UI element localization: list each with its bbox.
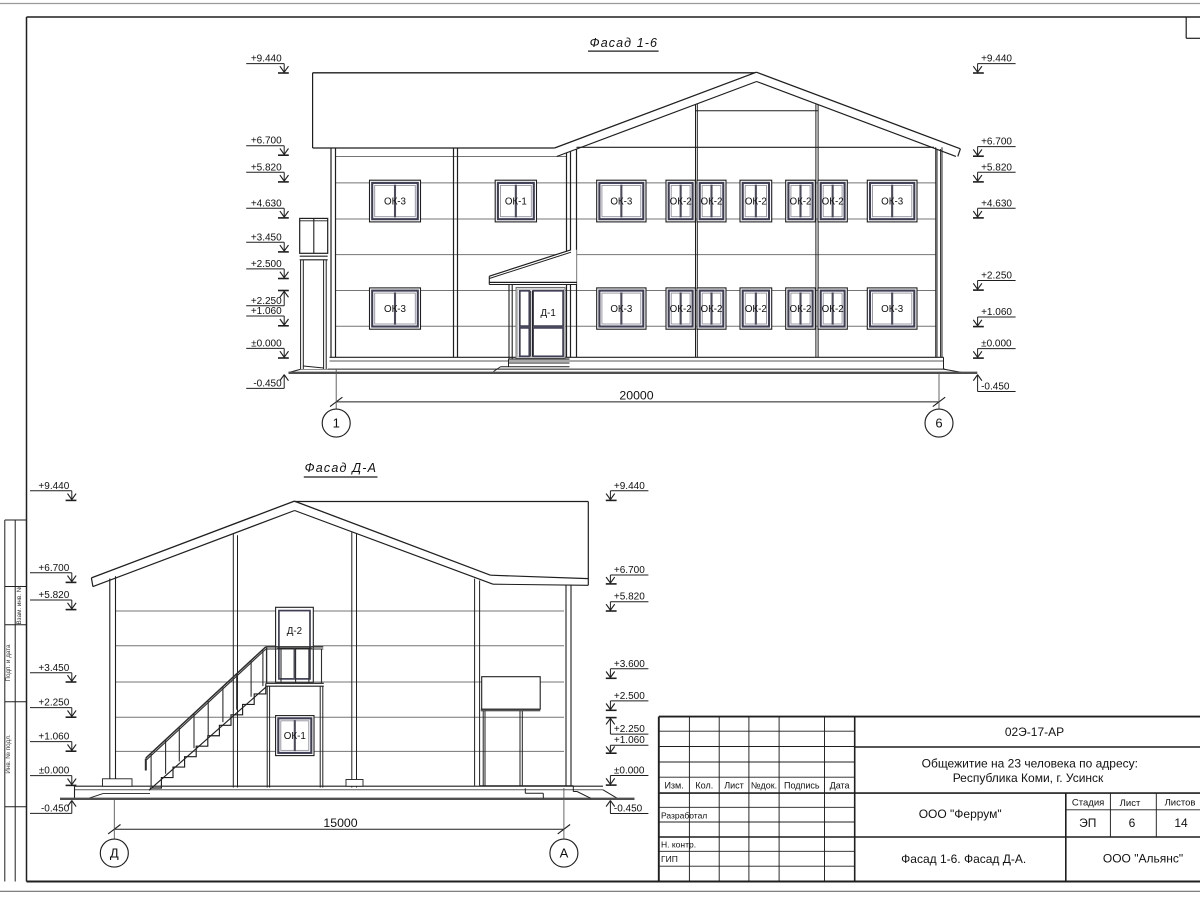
- svg-text:1: 1: [333, 416, 340, 431]
- svg-text:-0.450: -0.450: [981, 382, 1010, 393]
- svg-text:Изм.: Изм.: [664, 781, 683, 791]
- svg-text:+2.500: +2.500: [251, 259, 282, 270]
- svg-text:-0.450: -0.450: [614, 804, 643, 815]
- svg-text:-0.450: -0.450: [41, 803, 70, 814]
- svg-text:ОК-2: ОК-2: [700, 196, 722, 207]
- svg-text:Фасад 1-6: Фасад 1-6: [590, 36, 658, 50]
- svg-text:ООО "Феррум": ООО "Феррум": [919, 807, 1002, 821]
- svg-text:ОК-2: ОК-2: [822, 196, 844, 207]
- svg-text:ГИП: ГИП: [661, 854, 678, 864]
- svg-text:+2.250: +2.250: [614, 724, 645, 735]
- svg-text:Фасад Д-А: Фасад Д-А: [305, 461, 378, 475]
- svg-text:Д-1: Д-1: [541, 308, 556, 319]
- svg-text:+5.820: +5.820: [251, 162, 282, 173]
- svg-text:+2.250: +2.250: [38, 698, 69, 709]
- svg-text:+6.700: +6.700: [38, 563, 69, 574]
- svg-text:ОК-3: ОК-3: [610, 196, 633, 207]
- svg-text:Лист: Лист: [1120, 798, 1141, 809]
- svg-text:Фасад 1-6. Фасад Д-А.: Фасад 1-6. Фасад Д-А.: [901, 852, 1026, 866]
- svg-text:ОК-2: ОК-2: [789, 304, 811, 315]
- svg-text:+9.440: +9.440: [614, 481, 645, 492]
- svg-text:Инв. № подл.: Инв. № подл.: [5, 734, 12, 773]
- svg-text:ОК-3: ОК-3: [384, 196, 407, 207]
- svg-text:+6.700: +6.700: [614, 565, 645, 576]
- svg-text:Д-2: Д-2: [287, 626, 302, 637]
- svg-text:6: 6: [1129, 816, 1136, 830]
- svg-text:14: 14: [1174, 816, 1188, 830]
- svg-text:+3.600: +3.600: [614, 659, 645, 670]
- svg-text:Лист: Лист: [724, 781, 744, 791]
- svg-text:ОК-1: ОК-1: [284, 731, 306, 742]
- svg-text:ОК-2: ОК-2: [745, 196, 767, 207]
- svg-text:+2.500: +2.500: [614, 691, 645, 702]
- svg-text:ОК-2: ОК-2: [670, 196, 692, 207]
- svg-text:+1.060: +1.060: [251, 306, 282, 317]
- svg-text:Республика Коми, г. Усинск: Республика Коми, г. Усинск: [953, 771, 1104, 785]
- svg-text:±0.000: ±0.000: [39, 766, 70, 777]
- svg-text:20000: 20000: [619, 389, 653, 403]
- svg-text:Н. контр.: Н. контр.: [661, 840, 696, 850]
- svg-text:+2.250: +2.250: [981, 271, 1012, 282]
- svg-text:+5.820: +5.820: [38, 590, 69, 601]
- svg-text:-0.450: -0.450: [253, 378, 282, 389]
- svg-text:Подп. и дата: Подп. и дата: [5, 644, 12, 682]
- svg-text:ОК-3: ОК-3: [881, 304, 904, 315]
- svg-text:+1.060: +1.060: [38, 732, 69, 743]
- svg-text:Подпись: Подпись: [784, 781, 820, 791]
- svg-text:Взам. инв. №: Взам. инв. №: [16, 585, 23, 624]
- svg-text:Общежитие на 23 человека по ад: Общежитие на 23 человека по адресу:: [922, 757, 1138, 771]
- svg-text:15000: 15000: [323, 816, 357, 830]
- svg-text:ОК-2: ОК-2: [789, 196, 811, 207]
- svg-text:ОК-2: ОК-2: [822, 304, 844, 315]
- svg-text:+6.700: +6.700: [981, 137, 1012, 148]
- svg-text:+1.060: +1.060: [981, 307, 1012, 318]
- svg-text:ОК-2: ОК-2: [670, 304, 692, 315]
- svg-text:ОК-1: ОК-1: [505, 196, 527, 207]
- svg-text:Дата: Дата: [830, 781, 850, 791]
- svg-text:6: 6: [935, 416, 942, 431]
- svg-text:ООО "Альянс": ООО "Альянс": [1103, 852, 1183, 866]
- svg-text:±0.000: ±0.000: [251, 338, 282, 349]
- svg-text:Кол.: Кол.: [695, 781, 713, 791]
- svg-text:+9.440: +9.440: [38, 481, 69, 492]
- svg-text:+6.700: +6.700: [251, 136, 282, 147]
- svg-text:+3.450: +3.450: [38, 663, 69, 674]
- svg-text:+4.630: +4.630: [251, 198, 282, 209]
- svg-text:±0.000: ±0.000: [614, 766, 645, 777]
- svg-text:№док.: №док.: [751, 781, 777, 791]
- svg-text:+3.450: +3.450: [251, 232, 282, 243]
- svg-text:Разработал: Разработал: [661, 810, 707, 820]
- svg-text:ОК-3: ОК-3: [610, 304, 633, 315]
- svg-text:ОК-3: ОК-3: [384, 304, 407, 315]
- svg-text:+9.440: +9.440: [981, 54, 1012, 65]
- svg-text:Стадия: Стадия: [1072, 797, 1104, 808]
- svg-text:+4.630: +4.630: [981, 198, 1012, 209]
- svg-text:ОК-2: ОК-2: [745, 304, 767, 315]
- svg-text:А: А: [560, 846, 569, 861]
- svg-text:02Э-17-АР: 02Э-17-АР: [1005, 725, 1064, 739]
- svg-text:+1.060: +1.060: [614, 735, 645, 746]
- svg-text:Д: Д: [110, 846, 119, 861]
- svg-text:±0.000: ±0.000: [981, 339, 1012, 350]
- svg-text:ОК-3: ОК-3: [881, 196, 904, 207]
- svg-text:+5.820: +5.820: [614, 592, 645, 603]
- svg-text:ЭП: ЭП: [1079, 816, 1096, 830]
- svg-text:Листов: Листов: [1165, 797, 1196, 808]
- svg-text:+9.440: +9.440: [251, 54, 282, 65]
- svg-text:ОК-2: ОК-2: [700, 304, 722, 315]
- svg-text:+5.820: +5.820: [981, 162, 1012, 173]
